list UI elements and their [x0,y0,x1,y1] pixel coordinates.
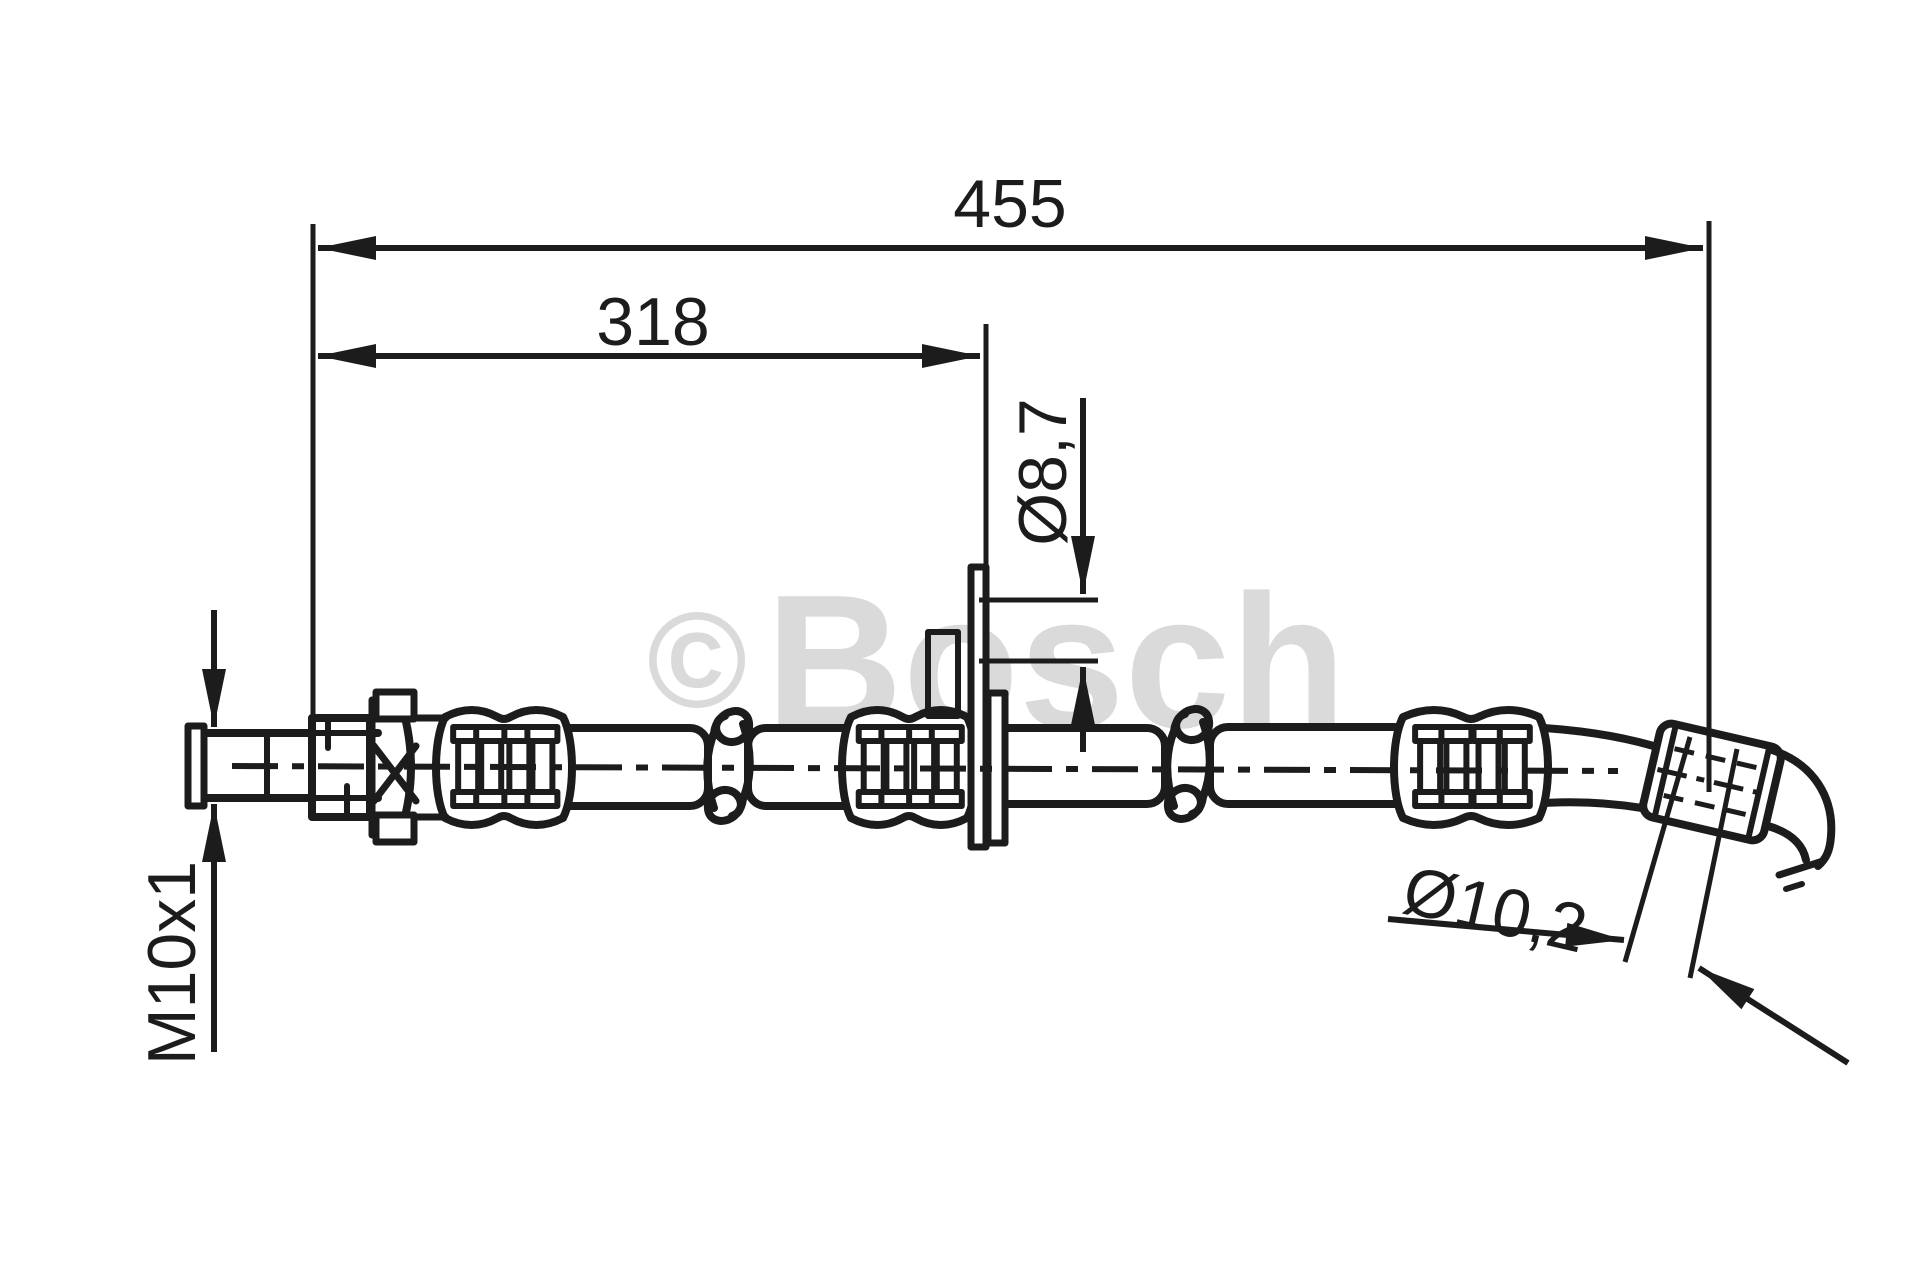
bracket-plate-thin [971,567,986,847]
bellows-ring [1500,792,1530,806]
dim-label-collar-diameter: Ø10,2 [1396,852,1594,968]
collar-top-flange [376,692,414,719]
brake-hose-technical-drawing: © Bosch [0,0,1920,1280]
collar-bottom-flange [376,815,414,842]
fitting-end-cap [188,726,204,806]
bellows-ring [1479,741,1499,792]
bellows-ring [527,792,557,806]
dim-label-port-diameter: Ø8,7 [1005,398,1081,545]
bellows-ring [932,792,962,806]
bellows-ring [1446,741,1466,792]
bellows-ring [1420,741,1440,792]
dim-label-overall-length: 455 [953,166,1066,242]
hose-segment [1210,727,1412,804]
bellows-ring [1505,741,1525,792]
technical-drawing-page: © Bosch [0,0,1920,1280]
dim-leader-d102-right [1699,968,1848,1063]
bellows-ring [1441,792,1471,806]
dim-label-thread-size: M10x1 [134,861,210,1065]
dim-label-partial-length: 318 [596,284,709,360]
